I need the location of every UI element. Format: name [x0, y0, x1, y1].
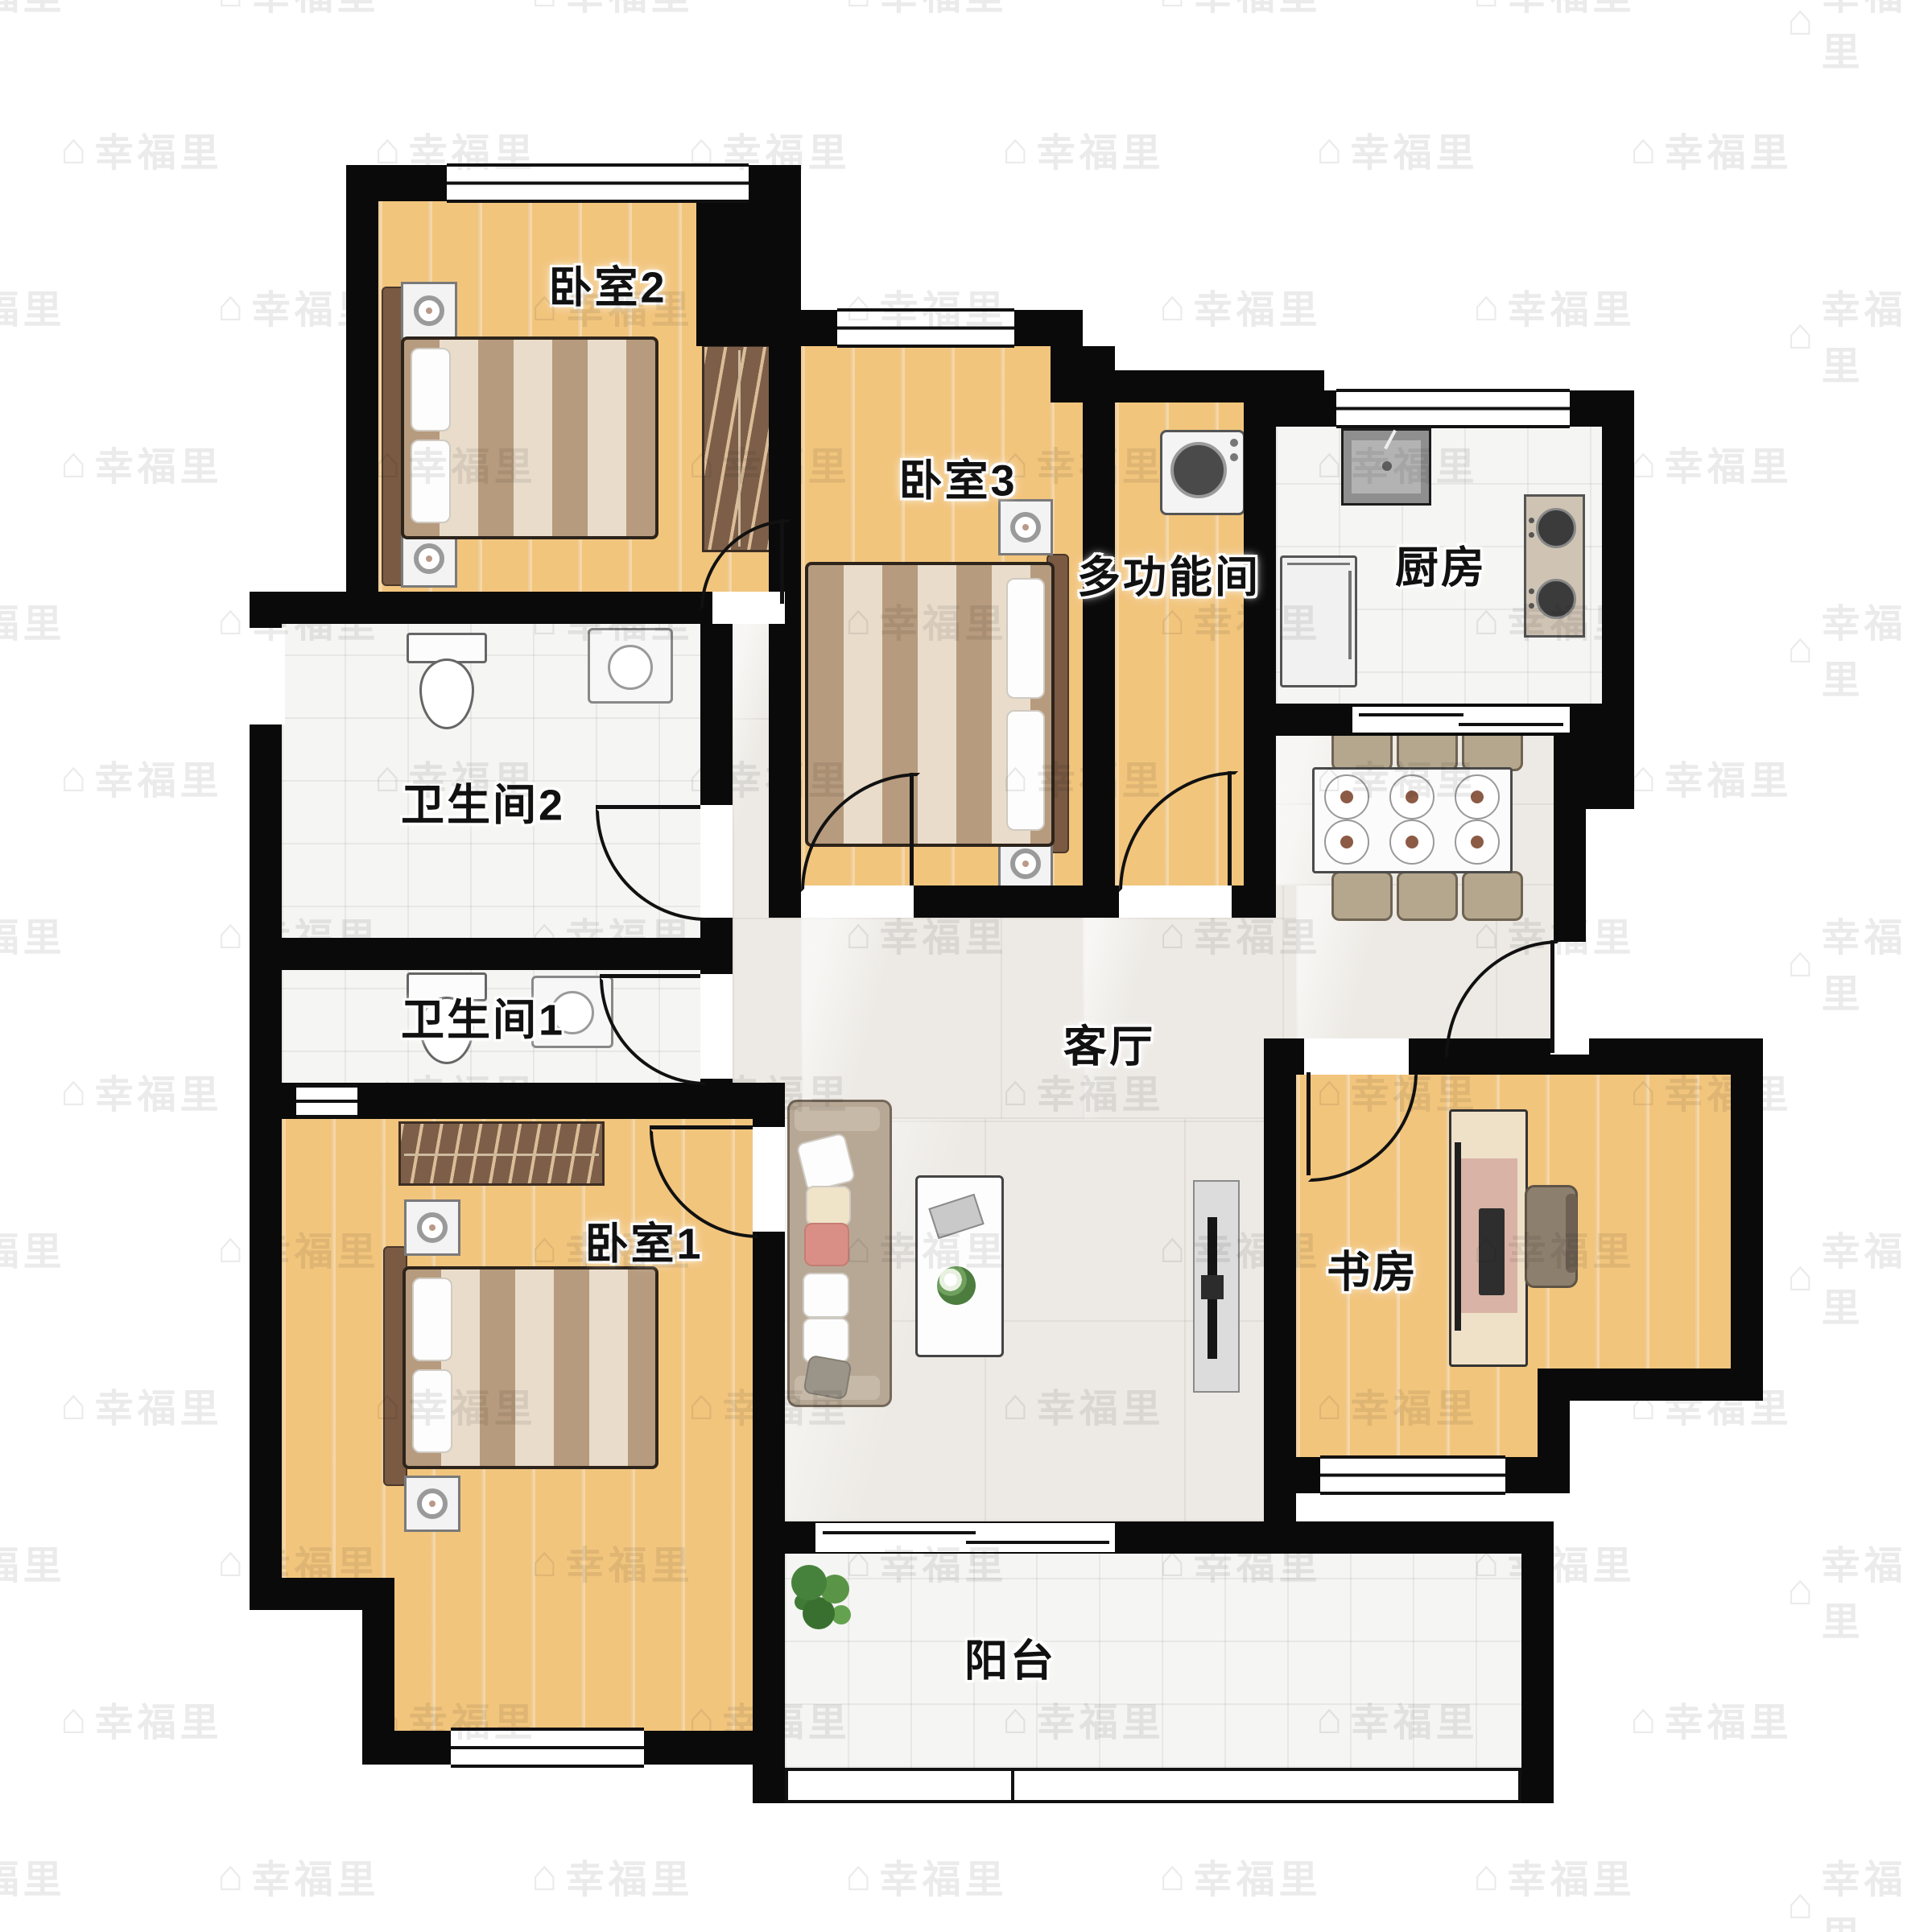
watermark-house-icon: ⌂ — [1787, 312, 1814, 356]
watermark-house-icon: ⌂ — [217, 284, 244, 328]
watermark-text: 幸福里 — [0, 0, 66, 20]
watermark-text: 幸福里 — [1822, 1847, 1932, 1932]
watermark-house-icon: ⌂ — [217, 1854, 244, 1897]
wall — [250, 1578, 394, 1610]
watermark: ⌂幸福里 — [1787, 592, 1932, 704]
watermark: ⌂幸福里 — [0, 1220, 66, 1276]
watermark: ⌂幸福里 — [60, 435, 223, 491]
wall — [250, 938, 700, 970]
bedroom1-wardrobe-icon — [398, 1121, 605, 1186]
watermark-text: 幸福里 — [880, 1847, 1008, 1904]
watermark-text: 幸福里 — [1194, 278, 1322, 334]
watermark-text: 幸福里 — [1822, 592, 1932, 704]
bedroom3-window — [837, 308, 1014, 348]
watermark-text: 幸福里 — [1194, 1847, 1322, 1904]
wall — [769, 346, 801, 918]
watermark-house-icon: ⌂ — [1159, 1854, 1186, 1897]
watermark-text: 幸福里 — [1508, 0, 1636, 20]
watermark: ⌂幸福里 — [1630, 749, 1793, 805]
wall — [1521, 1521, 1554, 1803]
watermark-house-icon: ⌂ — [531, 0, 558, 14]
watermark-house-icon: ⌂ — [60, 441, 87, 485]
lamp-icon — [417, 1488, 448, 1519]
multi-room-label: 多功能间 — [1077, 542, 1261, 605]
bath2-label: 卫生间2 — [401, 770, 565, 833]
watermark-house-icon: ⌂ — [1630, 127, 1657, 171]
bath1-label: 卫生间1 — [401, 985, 565, 1048]
balcony-label: 阳台 — [964, 1625, 1056, 1689]
watermark-house-icon: ⌂ — [845, 0, 872, 14]
watermark-text: 幸福里 — [880, 0, 1008, 20]
dining-chair-icon — [1331, 871, 1393, 921]
wall — [1731, 1038, 1763, 1401]
watermark: ⌂幸福里 — [217, 1847, 380, 1904]
coffee-table-icon — [915, 1175, 1004, 1357]
wall — [1051, 346, 1083, 402]
watermark-text: 幸福里 — [95, 749, 223, 805]
watermark-text: 幸福里 — [1665, 435, 1793, 491]
watermark: ⌂幸福里 — [845, 0, 1008, 20]
watermark: ⌂幸福里 — [531, 1847, 694, 1904]
watermark-house-icon: ⌂ — [217, 912, 244, 956]
watermark-text: 幸福里 — [0, 906, 66, 962]
entry-door-leaf — [1550, 940, 1554, 1053]
watermark-house-icon: ⌂ — [1159, 0, 1186, 14]
watermark-text: 幸福里 — [1194, 0, 1322, 20]
watermark-text: 幸福里 — [1822, 1534, 1932, 1646]
bath2-door-leaf — [596, 805, 700, 809]
watermark-house-icon: ⌂ — [1787, 1254, 1814, 1298]
watermark: ⌂幸福里 — [217, 0, 380, 20]
study-label: 书房 — [1327, 1236, 1418, 1300]
bath1-window — [296, 1084, 357, 1118]
lamp-icon — [414, 543, 444, 574]
watermark: ⌂幸福里 — [531, 0, 694, 20]
watermark-text: 幸福里 — [1665, 749, 1793, 805]
wall — [362, 1610, 394, 1735]
watermark: ⌂幸福里 — [1473, 278, 1636, 334]
kitchen-label: 厨房 — [1395, 532, 1487, 596]
wall — [1538, 1368, 1763, 1401]
watermark: ⌂幸福里 — [0, 1534, 66, 1590]
balcony-sliding-door — [815, 1523, 1115, 1552]
bath2-window — [246, 628, 285, 724]
wardrobe-rod — [404, 1154, 599, 1156]
watermark: ⌂幸福里 — [1473, 0, 1636, 20]
sofa-icon — [787, 1100, 892, 1407]
watermark-house-icon: ⌂ — [60, 1383, 87, 1426]
bed1-nightstand-bottom — [404, 1476, 460, 1532]
watermark: ⌂幸福里 — [0, 278, 66, 334]
watermark: ⌂幸福里 — [60, 1377, 223, 1433]
watermark-house-icon: ⌂ — [1787, 0, 1814, 42]
watermark-text: 幸福里 — [1037, 121, 1165, 177]
lamp-icon — [1010, 512, 1041, 543]
study-floor-lower — [1296, 1368, 1538, 1457]
watermark-house-icon: ⌂ — [1630, 1697, 1657, 1740]
dining-table-icon — [1312, 767, 1513, 873]
bedroom3-door-leaf — [910, 773, 914, 885]
watermark-text: 幸福里 — [1665, 121, 1793, 177]
wall — [1554, 809, 1586, 942]
study-window — [1320, 1455, 1505, 1495]
kitchen-window — [1336, 389, 1570, 428]
watermark-text: 幸福里 — [95, 1377, 223, 1433]
wardrobe-rod — [738, 350, 741, 547]
study-door-leaf — [1307, 1072, 1311, 1175]
watermark: ⌂幸福里 — [1159, 0, 1322, 20]
watermark-house-icon: ⌂ — [60, 755, 87, 799]
balcony-railing-divider — [1011, 1768, 1014, 1803]
watermark-house-icon: ⌂ — [60, 127, 87, 171]
watermark-house-icon: ⌂ — [217, 1540, 244, 1583]
balcony-floor — [785, 1554, 1521, 1768]
watermark: ⌂幸福里 — [1787, 1220, 1932, 1332]
watermark: ⌂幸福里 — [1787, 906, 1932, 1018]
bedroom2-wardrobe-icon — [702, 345, 774, 552]
wall — [753, 1554, 785, 1803]
watermark-text: 幸福里 — [95, 1063, 223, 1119]
bed2-double-bed-icon — [401, 336, 658, 539]
washing-machine-icon — [1160, 430, 1245, 515]
sliding-door-track — [966, 1541, 1109, 1544]
bath2-washbasin-icon — [588, 628, 673, 704]
bedroom1-window — [451, 1728, 644, 1768]
watermark: ⌂幸福里 — [0, 592, 66, 648]
sliding-door-track — [1459, 723, 1563, 726]
pillow-icon — [412, 1278, 452, 1361]
watermark-text: 幸福里 — [1508, 278, 1636, 334]
kitchen-sink-icon — [1341, 428, 1431, 506]
bed2-nightstand-top — [401, 282, 457, 340]
tv-cabinet-icon — [1193, 1180, 1240, 1393]
watermark-text: 幸福里 — [0, 1534, 66, 1590]
watermark-house-icon: ⌂ — [1002, 127, 1029, 171]
watermark-house-icon: ⌂ — [217, 598, 244, 642]
watermark-house-icon: ⌂ — [1787, 940, 1814, 984]
keyboard-icon — [1479, 1208, 1505, 1295]
watermark: ⌂幸福里 — [1316, 121, 1479, 177]
watermark: ⌂幸福里 — [1473, 1847, 1636, 1904]
sliding-door-track — [823, 1531, 976, 1534]
kitchen-opening — [1352, 707, 1570, 733]
watermark-house-icon: ⌂ — [1473, 284, 1500, 328]
watermark-text: 幸福里 — [0, 1847, 66, 1904]
watermark: ⌂幸福里 — [60, 1063, 223, 1119]
watermark: ⌂幸福里 — [1630, 435, 1793, 491]
watermark-text: 幸福里 — [1822, 1220, 1932, 1332]
watermark-house-icon: ⌂ — [531, 1854, 558, 1897]
watermark: ⌂幸福里 — [0, 906, 66, 962]
watermark-house-icon: ⌂ — [1787, 626, 1814, 670]
exterior-mask — [250, 1610, 362, 1771]
watermark-text: 幸福里 — [252, 1847, 380, 1904]
dining-chair-icon — [1462, 871, 1523, 921]
watermark-text: 幸福里 — [95, 121, 223, 177]
pillow-icon — [1006, 710, 1045, 831]
watermark-house-icon: ⌂ — [1787, 1882, 1814, 1926]
watermark: ⌂幸福里 — [1787, 1534, 1932, 1646]
wall — [346, 165, 378, 624]
watermark-text: 幸福里 — [252, 0, 380, 20]
lamp-icon — [1010, 848, 1041, 879]
sliding-door-track — [1359, 713, 1463, 716]
dining-chair-icon — [1397, 871, 1458, 921]
watermark-text: 幸福里 — [566, 0, 694, 20]
watermark: ⌂幸福里 — [60, 749, 223, 805]
watermark: ⌂幸福里 — [1630, 1690, 1793, 1747]
watermark: ⌂幸福里 — [60, 1690, 223, 1747]
watermark: ⌂幸福里 — [1159, 278, 1322, 334]
watermark-house-icon: ⌂ — [1473, 0, 1500, 14]
wall — [250, 1119, 282, 1610]
lamp-icon — [417, 1212, 448, 1243]
pillow-icon — [412, 1369, 452, 1453]
watermark: ⌂幸福里 — [1787, 1847, 1932, 1932]
pillow-icon — [411, 440, 451, 523]
watermark: ⌂幸福里 — [60, 121, 223, 177]
multi-room-door-leaf — [1228, 771, 1232, 885]
wall — [1244, 370, 1276, 885]
lamp-icon — [414, 295, 444, 326]
watermark-text: 幸福里 — [1822, 906, 1932, 1018]
watermark-text: 幸福里 — [1665, 1690, 1793, 1747]
watermark: ⌂幸福里 — [0, 1847, 66, 1904]
watermark-house-icon: ⌂ — [1159, 284, 1186, 328]
watermark-house-icon: ⌂ — [374, 127, 401, 171]
wall — [1602, 390, 1634, 736]
watermark-text: 幸福里 — [95, 1690, 223, 1747]
watermark: ⌂幸福里 — [845, 1847, 1008, 1904]
watermark-text: 幸福里 — [0, 1220, 66, 1276]
watermark-text: 幸福里 — [1351, 121, 1479, 177]
watermark: ⌂幸福里 — [1159, 1847, 1322, 1904]
watermark-text: 幸福里 — [1822, 278, 1932, 390]
bed1-double-bed-icon — [402, 1266, 658, 1469]
desk-icon — [1449, 1109, 1528, 1367]
bedroom1-label: 卧室1 — [584, 1208, 703, 1272]
watermark-house-icon: ⌂ — [1473, 1854, 1500, 1897]
bedroom1-door-leaf — [650, 1125, 753, 1129]
floor-plan: 卧室2 卧室3 多功能间 厨房 卫生间2 卫生间1 卧室1 客厅 书房 阳台 ⌂… — [0, 0, 1932, 1932]
watermark: ⌂幸福里 — [0, 0, 66, 20]
bath1-door-leaf — [600, 974, 700, 978]
office-chair-icon — [1525, 1185, 1578, 1288]
bed1-nightstand-top — [404, 1199, 460, 1256]
bedroom2-label: 卧室2 — [548, 252, 667, 316]
living-floor-a — [801, 918, 1083, 1119]
watermark: ⌂幸福里 — [1002, 121, 1165, 177]
bedroom2-window — [447, 163, 749, 203]
watermark-house-icon: ⌂ — [1787, 1568, 1814, 1612]
watermark-house-icon: ⌂ — [845, 1854, 872, 1897]
potted-plant-icon — [791, 1565, 827, 1600]
monitor-icon — [1455, 1142, 1461, 1331]
watermark: ⌂幸福里 — [1787, 0, 1932, 76]
gas-stove-icon — [1524, 494, 1585, 638]
watermark-text: 幸福里 — [0, 592, 66, 648]
wall — [1264, 1075, 1296, 1521]
watermark-house-icon: ⌂ — [1316, 127, 1343, 171]
watermark-house-icon: ⌂ — [217, 1226, 244, 1269]
watermark-text: 幸福里 — [1508, 1847, 1636, 1904]
watermark-text: 幸福里 — [95, 435, 223, 491]
balcony-railing — [785, 1768, 1521, 1803]
pillow-icon — [1006, 578, 1045, 699]
study-doorway — [1304, 1038, 1409, 1075]
pillow-icon — [411, 348, 451, 431]
bedroom3-label: 卧室3 — [898, 445, 1017, 509]
watermark-house-icon: ⌂ — [217, 0, 244, 14]
bedroom2-door-leaf — [780, 519, 784, 604]
fridge-icon — [1280, 555, 1357, 687]
watermark: ⌂幸福里 — [1787, 278, 1932, 390]
watermark-text: 幸福里 — [0, 278, 66, 334]
living-label: 客厅 — [1063, 1011, 1155, 1075]
wall — [1083, 346, 1115, 918]
watermark-house-icon: ⌂ — [60, 1069, 87, 1113]
watermark-text: 幸福里 — [1822, 0, 1932, 76]
watermark-house-icon: ⌂ — [60, 1697, 87, 1740]
bath2-toilet-icon — [407, 633, 487, 729]
watermark-text: 幸福里 — [566, 1847, 694, 1904]
watermark: ⌂幸福里 — [1630, 121, 1793, 177]
